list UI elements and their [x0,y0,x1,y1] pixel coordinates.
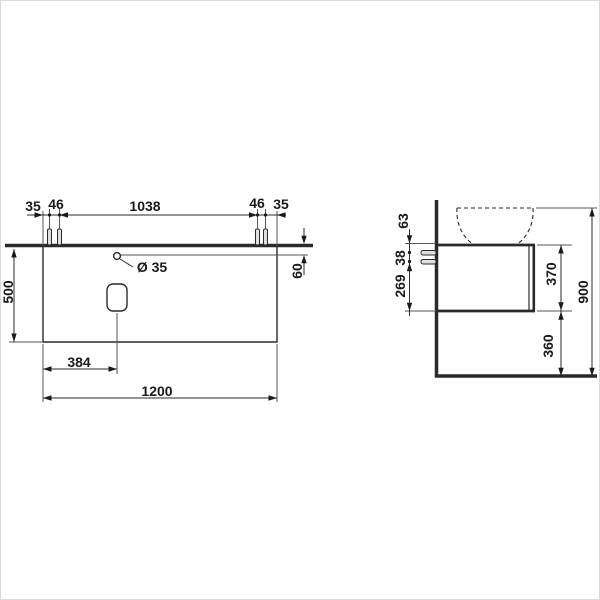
cabinet-side-outline [438,245,535,311]
dim-label-total-width: 1200 [141,384,172,398]
arrowhead-icon [407,303,412,311]
arrowhead-icon [407,235,412,243]
arrowhead-icon [11,249,16,258]
dim-label-upper-offset: 63 [396,213,410,229]
wall-bolt-icon [421,251,436,256]
arrowhead-icon [277,212,286,217]
dim-label-cutout-offset: 384 [67,355,90,369]
dimension-top-chain [27,209,286,246]
dim-label-hole-diameter: Ø 35 [137,260,167,274]
wall-bolts [421,251,436,265]
dim-label-stud-spacing-left: 46 [48,197,64,211]
basin-cutout-outline [107,284,127,311]
technical-drawing-page: 35 46 1038 46 35 500 Ø 35 60 384 1200 63… [0,0,600,600]
mounting-studs [48,229,268,245]
dim-label-stud-spacing-right: 46 [249,196,265,210]
dim-label-hole-offset: 60 [290,263,304,279]
arrowhead-icon [43,366,52,371]
arrowhead-icon [589,208,594,217]
arrowhead-icon [109,366,118,371]
dim-label-bracket-spacing: 38 [393,250,407,266]
drawing-linework [0,0,600,600]
mounting-stud-icon [58,229,62,245]
leader-line [120,259,133,267]
side-view [405,200,597,378]
dim-label-lower-offset: 269 [393,274,407,297]
dim-label-total-height: 900 [576,280,590,303]
arrowhead-icon [11,334,16,343]
dim-label-floor-clearance: 360 [541,334,555,357]
mounting-stud-icon [256,229,260,245]
arrowhead-icon [269,395,278,400]
arrowhead-icon [558,312,563,320]
front-view [5,209,313,402]
arrowhead-icon [558,245,563,254]
wall-bolt-icon [421,260,436,265]
arrowhead-icon [301,236,306,244]
dim-label-cabinet-height: 370 [544,262,558,285]
arrowhead-icon [60,212,69,217]
faucet-hole-circle [114,253,121,260]
arrowhead-icon [558,302,563,310]
washbasin-dashed-outline [457,208,533,244]
dim-label-depth: 500 [1,280,15,303]
arrowhead-icon [43,395,52,400]
mounting-stud-icon [48,229,52,245]
mounting-stud-icon [264,229,268,245]
dim-label-right-margin: 35 [273,197,289,211]
dimension-left-chain [405,229,436,316]
dim-label-stud-distance: 1038 [129,199,160,213]
dim-label-left-margin: 35 [25,199,41,213]
